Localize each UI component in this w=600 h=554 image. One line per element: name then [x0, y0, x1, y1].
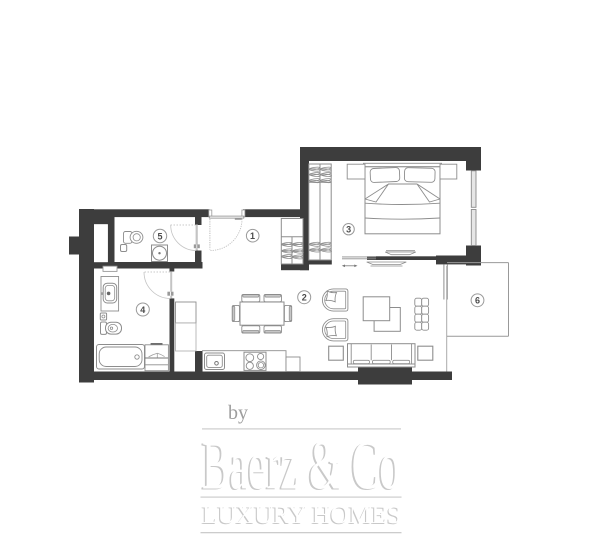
svg-text:6: 6 — [475, 296, 480, 306]
svg-text:Baerz & Co: Baerz & Co — [202, 427, 400, 504]
svg-text:3: 3 — [346, 224, 351, 234]
svg-text:by: by — [228, 402, 248, 424]
svg-text:2: 2 — [302, 293, 307, 303]
svg-text:5: 5 — [157, 231, 162, 241]
svg-text:LUXURY HOMES: LUXURY HOMES — [202, 502, 401, 529]
svg-text:4: 4 — [140, 305, 145, 315]
svg-text:1: 1 — [250, 231, 255, 241]
